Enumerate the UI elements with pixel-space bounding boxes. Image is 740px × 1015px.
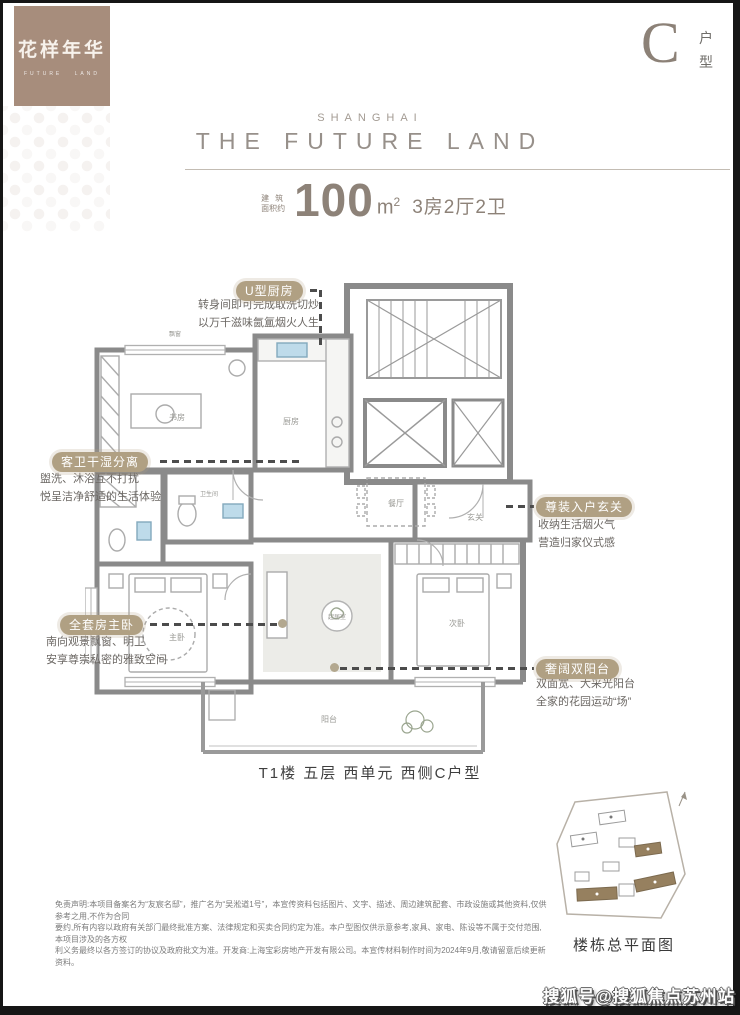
connector-dot-balcony	[330, 663, 339, 672]
connector-kitchen-v	[319, 290, 322, 345]
area-label-line1: 建筑	[261, 194, 289, 204]
frame-top	[0, 0, 740, 3]
callout-desc-foyer: 收纳生活烟火气 营造归家仪式感	[538, 517, 615, 552]
frame-bottom	[0, 1006, 740, 1015]
callout-desc-kitchen-line2: 以万千滋味氤氲烟火人生	[198, 315, 319, 333]
callout-desc-foyer-line1: 收纳生活烟火气	[538, 517, 615, 535]
connector-master-bedroom	[150, 623, 278, 626]
callout-desc-master-line2: 安享尊崇私密的雅致空间	[46, 652, 167, 670]
unit-type-letter: C	[641, 14, 680, 72]
area-unit: m2	[377, 192, 400, 218]
callout-desc-foyer-line2: 营造归家仪式感	[538, 535, 615, 553]
brand-name: THE FUTURE LAND	[0, 128, 740, 155]
callout-desc-guest-bath: 盥洗、沐浴互不打扰 悦呈洁净舒适的生活体验	[40, 471, 161, 506]
unit-type-label-2: 型	[698, 52, 714, 72]
room-label-kitchen: 厨房	[283, 416, 299, 426]
siteplan-north-arrow	[679, 792, 687, 806]
callout-badge-master-bedroom: 全套房主卧	[60, 615, 143, 635]
room-label-study: 书房	[169, 412, 185, 422]
siteplan-label: 楼栋总平面图	[545, 934, 703, 955]
callout-badge-guest-bath: 客卫干湿分离	[52, 452, 148, 472]
watermark: 搜狐号@搜狐焦点苏州站	[543, 983, 735, 1007]
disclaimer-line2: 要约,所有内容以政府有关部门最终批准方案、法律规定和买卖合同约定为准。本户型图仅…	[55, 922, 547, 945]
logo-title: 花样年华	[18, 35, 106, 62]
room-label-dining: 餐厅	[388, 499, 404, 508]
logo-box: 花样年华 FUTURE LAND	[14, 6, 110, 106]
area-unit-m: m	[377, 197, 394, 219]
brand-city: SHANGHAI	[0, 112, 740, 124]
callout-desc-balcony-line2: 全家的花园运动“场”	[536, 694, 635, 712]
area-label-line2: 面积约	[261, 204, 289, 214]
connector-foyer	[506, 505, 534, 508]
connector-guest-bath	[160, 460, 300, 463]
logo-subtitle: FUTURE LAND	[24, 71, 100, 77]
connector-balcony	[340, 667, 534, 670]
callout-desc-guest-bath-line2: 悦呈洁净舒适的生活体验	[40, 489, 161, 507]
callout-desc-master-line1: 南向观景飘窗、明卫	[46, 634, 167, 652]
room-label-foyer: 玄关	[467, 512, 483, 522]
room-label-second-bedroom: 次卧	[449, 618, 465, 628]
room-label-balcony: 阳台	[321, 714, 337, 724]
flyer-page: 花样年华 FUTURE LAND C 户 型 SHANGHAI THE FUTU…	[0, 0, 740, 1015]
connector-dot-master-bedroom	[278, 619, 287, 628]
area-layout: 3房2厅2卫	[412, 198, 507, 218]
disclaimer-line3: 利义务最终以各方签订的协议及政府批文为准。开发商:上海宝彩房地产开发有限公司。本…	[55, 945, 547, 968]
area-value: 100	[294, 180, 374, 220]
frame-left	[0, 0, 3, 1015]
callout-desc-kitchen: 转身间即可完成取洗切炒 以万千滋味氤氲烟火人生	[198, 297, 319, 332]
plan-caption: T1楼 五层 西单元 西侧C户型	[0, 762, 740, 783]
floorplan-drawing: 书房 厨房 餐厅 玄关 卫生间 主卧 起居室 次卧 阳台 飘窗	[85, 272, 545, 764]
frame-right	[733, 0, 740, 1015]
divider-line	[185, 169, 730, 170]
callout-badge-foyer: 尊装入户玄关	[536, 497, 632, 517]
unit-type-label-1: 户	[698, 28, 714, 48]
room-label-living: 起居室	[328, 613, 346, 621]
room-label-bathroom: 卫生间	[200, 490, 218, 498]
area-label: 建筑 面积约	[261, 194, 289, 214]
callout-desc-balcony: 双面宽、大采光阳台 全家的花园运动“场”	[536, 676, 635, 711]
area-row: 建筑 面积约 100 m2 3房2厅2卫	[0, 180, 740, 220]
callout-badge-balcony: 奢阔双阳台	[536, 659, 619, 679]
area-unit-sup: 2	[394, 195, 401, 209]
room-label-master-bedroom: 主卧	[169, 632, 185, 642]
callout-desc-master-bedroom: 南向观景飘窗、明卫 安享尊崇私密的雅致空间	[46, 634, 167, 669]
callout-badge-kitchen: U型厨房	[236, 281, 303, 301]
callout-desc-guest-bath-line1: 盥洗、沐浴互不打扰	[40, 471, 161, 489]
room-label-bay-window: 飘窗	[169, 330, 181, 338]
disclaimer-line1: 免责声明:本项目备案名为“友宸名邸”，推广名为“吴淞道1号”，本宣传资料包括图片…	[55, 899, 547, 922]
disclaimer: 免责声明:本项目备案名为“友宸名邸”，推广名为“吴淞道1号”，本宣传资料包括图片…	[55, 899, 547, 968]
siteplan-drawing	[545, 786, 703, 934]
